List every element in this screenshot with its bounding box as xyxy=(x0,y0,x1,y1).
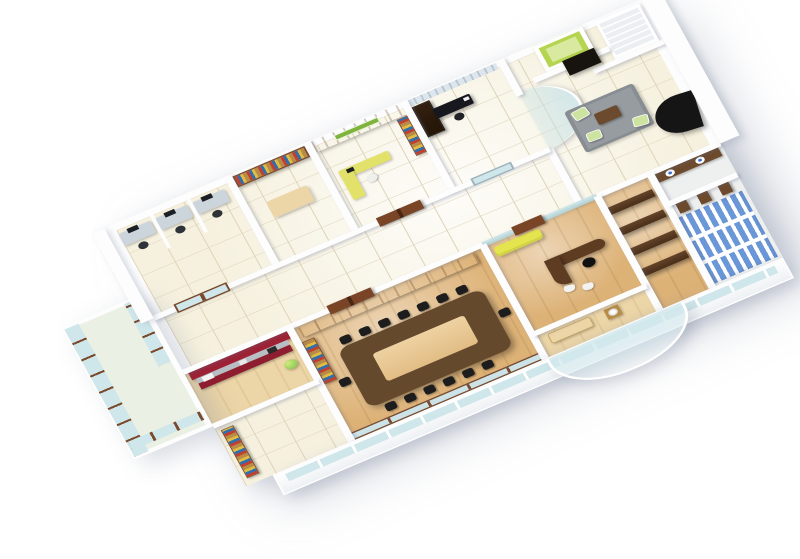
canvas: { "meta": { "type": "3d-isometric-office… xyxy=(0,0,800,550)
basin-drain-icon xyxy=(698,158,703,162)
floor-plan-scene xyxy=(25,0,783,520)
stall-divider xyxy=(688,211,755,242)
washbasin xyxy=(607,307,619,317)
basin-drain-icon xyxy=(668,171,673,175)
stall-divider xyxy=(700,234,767,265)
